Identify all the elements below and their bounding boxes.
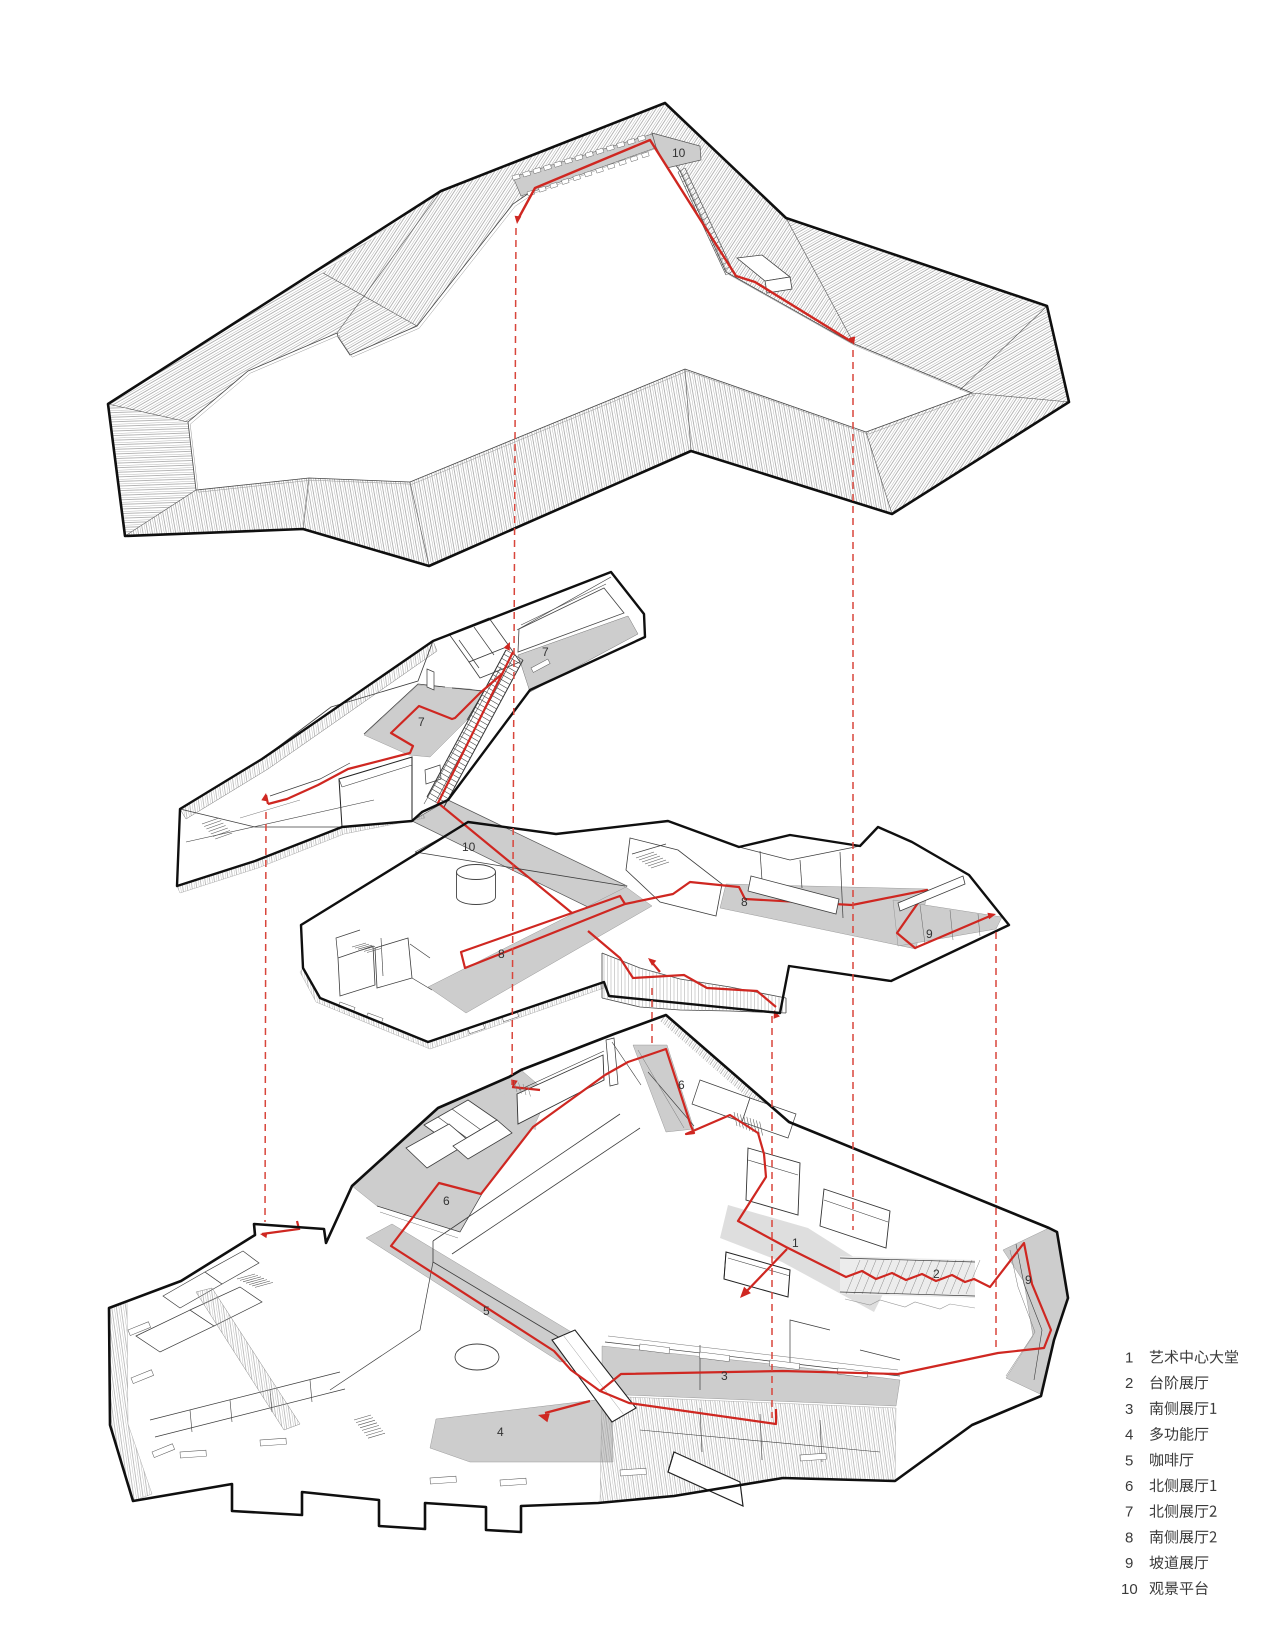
svg-text:7: 7 [1125,1504,1133,1521]
svg-text:9: 9 [926,927,933,941]
svg-text:4: 4 [497,1425,504,1439]
svg-text:6: 6 [678,1078,685,1092]
svg-text:2: 2 [933,1267,940,1281]
svg-text:2: 2 [1125,1375,1133,1392]
svg-text:10: 10 [672,146,686,160]
svg-text:6: 6 [1125,1478,1133,1495]
svg-text:1: 1 [1125,1350,1133,1367]
svg-text:8: 8 [498,947,505,961]
svg-text:9: 9 [1025,1273,1032,1287]
svg-text:3: 3 [1125,1401,1133,1418]
svg-text:1: 1 [792,1236,799,1250]
svg-text:4: 4 [1125,1427,1133,1444]
svg-text:5: 5 [483,1304,490,1318]
svg-text:7: 7 [418,715,425,729]
svg-text:6: 6 [443,1194,450,1208]
svg-text:9: 9 [1125,1555,1133,1572]
svg-text:7: 7 [542,645,549,659]
svg-text:10: 10 [462,840,476,854]
svg-text:8: 8 [741,895,748,909]
svg-text:8: 8 [1125,1529,1133,1546]
svg-text:10: 10 [1121,1581,1138,1598]
svg-text:3: 3 [721,1369,728,1383]
svg-text:5: 5 [1125,1452,1133,1469]
